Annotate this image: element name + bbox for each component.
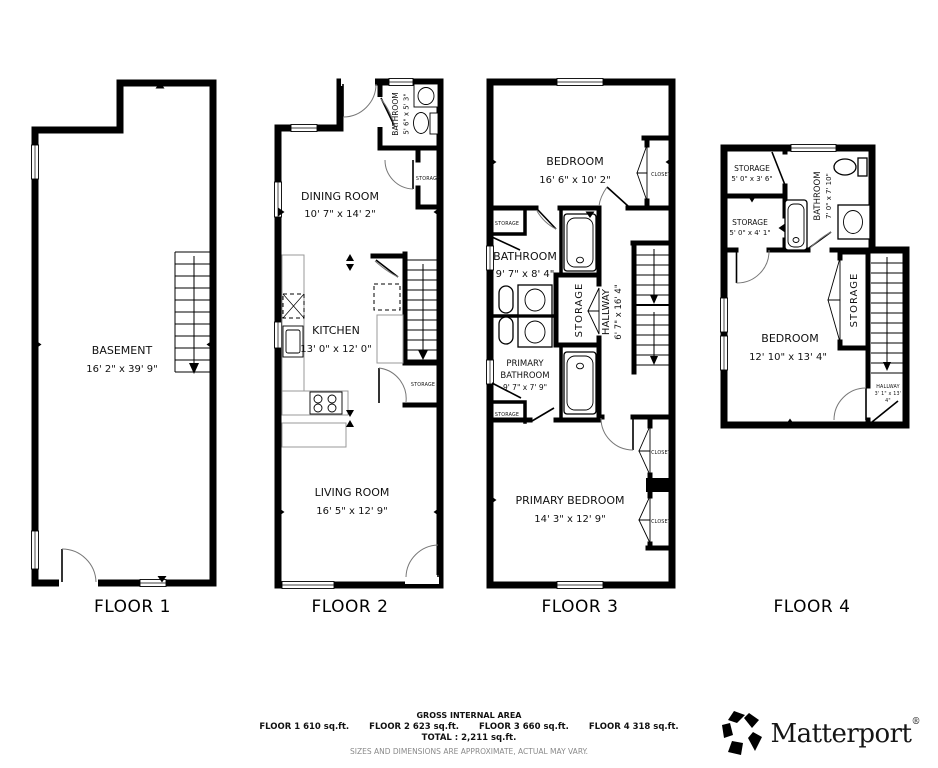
floorplan-page: BASEMENT 16' 2" x 39' 9" [0, 0, 938, 768]
svg-text:5' 6" x 5' 3": 5' 6" x 5' 3" [403, 93, 411, 134]
floor3-window-bottom [557, 582, 603, 589]
floor3-area: FLOOR 3 660 sq.ft. [479, 722, 569, 732]
storage-tag: STORAGE [495, 412, 519, 418]
hallway-dims: 4" [885, 398, 891, 404]
kitchen-label: KITCHEN [312, 324, 360, 337]
floor2-sink-icon [414, 84, 438, 107]
floor1-area: FLOOR 1 610 sq.ft. [259, 722, 349, 732]
stove-icon [310, 392, 342, 414]
storage-tag: STORAGE [495, 221, 519, 227]
floor2-window-left-lower [275, 322, 282, 348]
storage-tag: STORAGE [416, 176, 440, 182]
living-label: LIVING ROOM [315, 486, 390, 499]
floor-2-plan: BATHROOM 5' 6" x 5' 3" STORAGE DINING RO… [252, 72, 448, 592]
primary-bedroom-dims: 14' 3" x 12' 9" [534, 514, 606, 525]
floor1-window-left-upper [32, 145, 39, 179]
storage2-label: STORAGE [732, 218, 768, 227]
primary-bathroom-label: PRIMARY [506, 359, 544, 369]
primary-bathroom-label: BATHROOM [500, 371, 549, 381]
living-dims: 16' 5" x 12' 9" [316, 506, 388, 517]
storage2-dims: 5' 0" x 4' 1" [729, 229, 770, 237]
floor2-window-bottom [282, 582, 334, 589]
matterport-wordmark: Matterport® [770, 717, 920, 749]
basement-label: BASEMENT [92, 344, 153, 357]
bathroom-dims: 9' 7" x 8' 4" [496, 269, 555, 280]
floor-4-caption: FLOOR 4 [712, 597, 912, 617]
svg-text:STORAGE: STORAGE [574, 283, 585, 338]
kitchen-counter-left [282, 255, 304, 391]
storage-mid-label: STORAGE [849, 273, 860, 328]
storage-tag: STORAGE [411, 382, 435, 388]
storage1-dims: 5' 0" x 3' 6" [731, 175, 772, 183]
floor-3-caption: FLOOR 3 [480, 597, 680, 617]
primary-bedroom-label: PRIMARY BEDROOM [515, 494, 624, 507]
hallway-label: HALLWAY [876, 384, 900, 390]
floor3-window-left-pbath [487, 360, 494, 384]
closet-tag: CLOSET [651, 172, 671, 178]
floor2-area: FLOOR 2 623 sq.ft. [369, 722, 459, 732]
floor3-closet-divider [646, 478, 672, 492]
svg-text:HALLWAY: HALLWAY [601, 288, 612, 335]
floor-3-plan: BEDROOM 16' 6" x 10' 2" CLOSET STORAGE B… [480, 72, 680, 592]
matterport-pinwheel-icon [722, 711, 762, 755]
bathtub-icon [785, 200, 807, 250]
bedroom-dims: 16' 6" x 10' 2" [539, 175, 611, 186]
hallway-dims: 3' 1" x 13' [875, 391, 902, 397]
floor2-window-top [389, 79, 413, 86]
toilet-icon [834, 158, 867, 176]
floor2-window-notch [291, 125, 317, 132]
floor-1-caption: FLOOR 1 [25, 597, 240, 617]
floor1-window-left-lower [32, 531, 39, 569]
svg-text:BATHROOM: BATHROOM [813, 171, 823, 220]
svg-text:BATHROOM: BATHROOM [391, 92, 400, 135]
dining-label: DINING ROOM [301, 190, 379, 203]
floor-4-plan: STORAGE 5' 0" x 3' 6" STORAGE 5' 0" x 4'… [712, 138, 912, 433]
floor-1-plan: BASEMENT 16' 2" x 39' 9" [25, 75, 240, 590]
svg-text:STORAGE: STORAGE [849, 273, 860, 328]
closet-tag: CLOSET [651, 519, 671, 525]
bedroom-label: BEDROOM [761, 332, 818, 345]
matterport-logo: Matterport® [722, 711, 920, 755]
floor2-toilet-icon [414, 113, 439, 135]
bathroom-label: BATHROOM [493, 250, 557, 263]
kitchen-island [282, 423, 346, 447]
closet-tag: CLOSET [651, 450, 671, 456]
bathtub-icon [564, 214, 596, 271]
floor-2-caption: FLOOR 2 [252, 597, 448, 617]
floor4-window-left-upper [721, 298, 728, 332]
floor3-window-top [557, 79, 603, 86]
svg-text:6' 7" x 16' 4": 6' 7" x 16' 4" [614, 284, 624, 339]
basement-dims: 16' 2" x 39' 9" [86, 364, 158, 375]
registered-mark: ® [912, 717, 921, 727]
bedroom-dims: 12' 10" x 13' 4" [749, 352, 827, 363]
bathtub-icon [564, 352, 596, 414]
counter-under-stairs [377, 315, 403, 363]
bedroom-label: BEDROOM [546, 155, 603, 168]
floor1-outer-walls [35, 83, 213, 583]
vanity-sink-icon [838, 205, 870, 239]
floor4-window-top [791, 145, 836, 152]
dining-dims: 10' 7" x 14' 2" [304, 209, 376, 220]
svg-text:7' 0" x 7' 10": 7' 0" x 7' 10" [825, 173, 833, 219]
storage1-label: STORAGE [734, 164, 770, 173]
floor4-window-left-lower [721, 336, 728, 370]
storage-mid-label: STORAGE [574, 283, 585, 338]
kitchen-dims: 13' 0" x 12' 0" [300, 344, 372, 355]
primary-bathroom-dims: 9' 7" x 7' 9" [503, 383, 547, 392]
floor4-area: FLOOR 4 318 sq.ft. [589, 722, 679, 732]
